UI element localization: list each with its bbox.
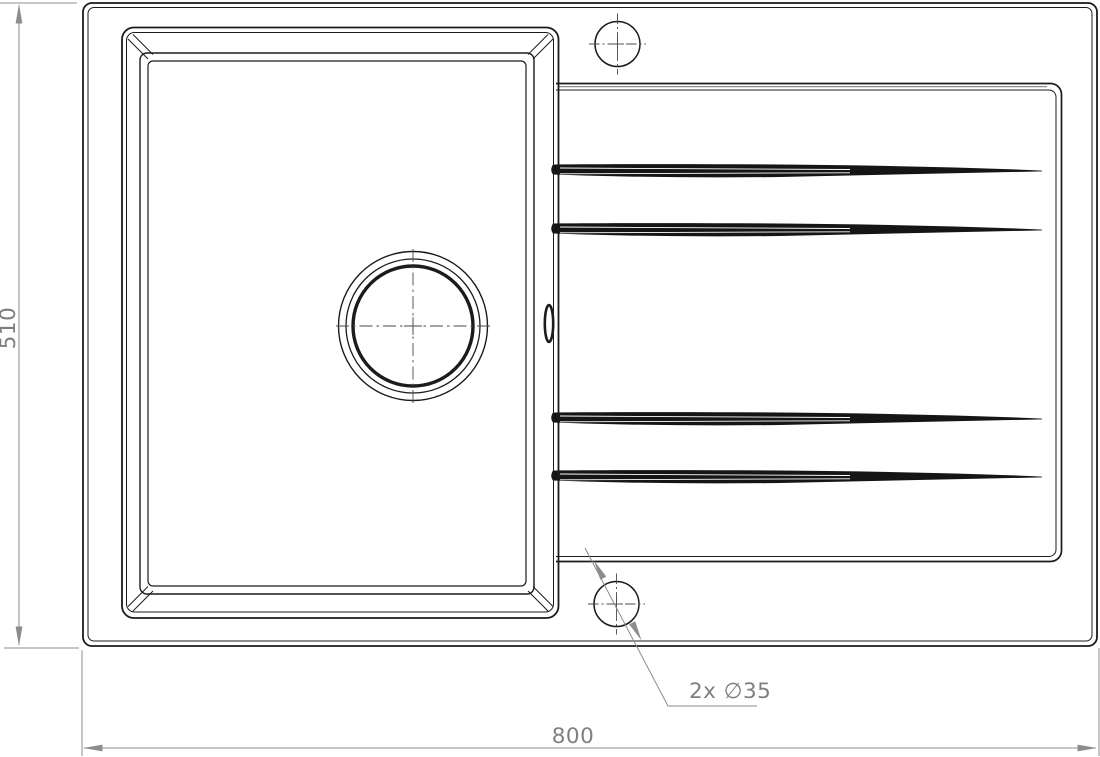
basin-rim xyxy=(122,28,559,619)
tap-hole-top xyxy=(589,14,646,75)
dimension-arrow-up xyxy=(16,4,23,24)
basin-rim-inner-line xyxy=(127,33,554,613)
height-dimension-label: 510 xyxy=(0,306,31,350)
drain-centerlines xyxy=(336,249,490,403)
sink-outer-inner-line xyxy=(88,8,1092,642)
basin-bevel-inner-line xyxy=(148,61,526,586)
drainboard xyxy=(551,84,1061,562)
drainboard-groove-2 xyxy=(551,223,1042,236)
sink-outer-contour xyxy=(83,3,1097,646)
hole-diameter-label: 2x ∅35 xyxy=(689,681,771,703)
sink-outer-edge xyxy=(83,3,1097,646)
basin-bowl-edge xyxy=(140,53,534,594)
technical-drawing-canvas: 510 800 2x ∅35 xyxy=(0,0,1100,757)
drainboard-groove-3 xyxy=(551,412,1042,425)
drainboard-inner-edge xyxy=(556,90,1056,557)
sink-drawing xyxy=(0,0,1100,757)
dimension-arrow-left xyxy=(83,745,103,752)
drainboard-groove-4 xyxy=(551,470,1042,483)
basin-rim-outer-line xyxy=(122,28,559,619)
groove-highlight-lines xyxy=(560,168,850,480)
tap-hole-top-centerlines xyxy=(589,14,646,75)
drainboard-outer-edge xyxy=(556,84,1062,562)
width-dimension-label: 800 xyxy=(543,726,603,748)
leader-arrow-upper xyxy=(594,561,606,580)
leader-arrow-lower xyxy=(629,621,641,640)
dimension-arrow-right xyxy=(1078,745,1098,752)
drain-assembly xyxy=(336,249,490,403)
overflow-slot xyxy=(545,305,553,342)
drainboard-grooves xyxy=(551,164,1042,483)
drainboard-groove-1 xyxy=(551,164,1042,177)
dimension-arrow-down xyxy=(16,627,23,647)
basin-bevel-outer-line xyxy=(140,53,534,594)
basin-corner-chamfers xyxy=(128,35,553,612)
